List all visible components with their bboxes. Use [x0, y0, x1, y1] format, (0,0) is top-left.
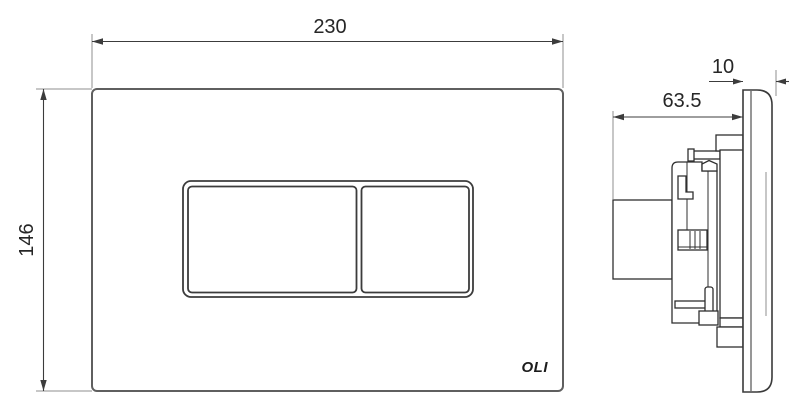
arrowhead-thickness-left [733, 79, 743, 85]
arrowhead-left [92, 38, 103, 44]
bracket-lower-band [720, 318, 743, 327]
bracket-foot [717, 327, 743, 347]
arrowhead-depth-right [732, 114, 743, 120]
large-flush-button [188, 187, 357, 293]
flush-plate-technical-drawing: 230 146 OLI [0, 0, 800, 417]
height-dimension-label: 146 [16, 223, 38, 256]
mechanism-top-bevel [702, 161, 717, 172]
arrowhead-right [552, 38, 563, 44]
small-flush-button [362, 187, 470, 293]
bracket-bar [720, 150, 743, 318]
front-view: 230 146 OLI [16, 16, 563, 391]
technical-drawing-canvas: 230 146 OLI [0, 0, 800, 417]
width-dimension-label: 230 [313, 16, 346, 38]
side-clip [705, 287, 713, 313]
dimension-width: 230 [92, 16, 563, 88]
lower-ledge [675, 301, 708, 308]
bottom-step [699, 311, 718, 325]
arrowhead-top [40, 89, 46, 100]
push-rod [693, 151, 720, 159]
side-view: 63.5 10 [613, 56, 789, 392]
depth-dimension-label: 63.5 [663, 90, 702, 112]
wall-housing-profile [613, 200, 672, 279]
plate-side-profile [743, 90, 772, 392]
latch-block [678, 230, 707, 250]
arrowhead-bottom [40, 380, 46, 391]
mounting-bracket [716, 135, 743, 347]
brand-logo: OLI [522, 359, 549, 376]
thickness-dimension-label: 10 [712, 56, 734, 78]
push-rod-cap [688, 149, 694, 161]
bracket-top-cap [716, 135, 743, 151]
arrowhead-thickness-right [776, 79, 786, 85]
plate-side-outline [743, 90, 772, 392]
arrowhead-depth-left [613, 114, 624, 120]
dimension-height: 146 [16, 89, 92, 391]
